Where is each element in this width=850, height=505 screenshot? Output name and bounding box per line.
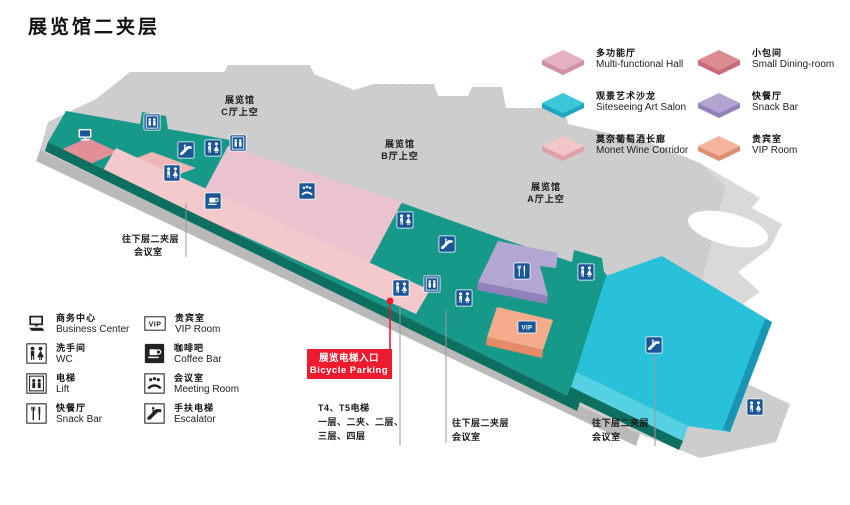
svg-text:展览馆: 展览馆 bbox=[385, 138, 415, 149]
legend-item-vip: 贵宾室 VIP Room bbox=[144, 313, 220, 336]
legend-item-small-dining: 小包间 Small Dining-room bbox=[696, 48, 834, 78]
lift-icon bbox=[230, 135, 246, 151]
vip-box-icon bbox=[144, 316, 166, 331]
svg-text:T4、T5电梯: T4、T5电梯 bbox=[318, 402, 370, 413]
svg-text:往下层二夹层: 往下层二夹层 bbox=[592, 417, 649, 428]
fork-knife-icon bbox=[26, 403, 47, 424]
wc-icon bbox=[205, 140, 221, 156]
legend-label-en: Small Dining-room bbox=[752, 59, 834, 71]
legend-item-monet-corridor: 莫奈葡萄酒长廊 Monet Wine Corridor bbox=[540, 134, 688, 164]
legend-label-en: Multi-functional Hall bbox=[596, 59, 683, 71]
escalator-icon bbox=[646, 337, 662, 353]
svg-text:三层、四层: 三层、四层 bbox=[318, 431, 366, 441]
meeting-icon bbox=[299, 183, 315, 199]
legend-item-art-salon: 观景艺术沙龙 Siteseeing Art Salon bbox=[540, 91, 686, 121]
legend-item-business-center: 商务中心 Business Center bbox=[26, 313, 129, 336]
legend-item-snack-bar: 快餐厅 Snack Bar bbox=[696, 91, 798, 121]
legend-label-en: Monet Wine Corridor bbox=[596, 145, 688, 157]
wc-icon bbox=[393, 280, 409, 296]
svg-text:A厅上空: A厅上空 bbox=[527, 193, 565, 204]
wc-icon bbox=[747, 399, 763, 415]
legend-item-snack: 快餐厅 Snack Bar bbox=[26, 403, 102, 426]
escalator-icon bbox=[144, 403, 165, 424]
bicycle-callout-en: Bicycle Parking bbox=[310, 365, 388, 376]
floor-map-page: VIP bbox=[0, 0, 850, 505]
escalator-icon bbox=[439, 236, 455, 252]
meeting-room-icon bbox=[144, 373, 165, 394]
escalator-icon bbox=[178, 142, 194, 158]
coffee-icon bbox=[205, 193, 221, 209]
svg-text:展览馆: 展览馆 bbox=[531, 181, 561, 192]
legend-label-en: VIP Room bbox=[752, 145, 797, 157]
coffee-cup-icon bbox=[144, 343, 165, 364]
vip-icon bbox=[518, 321, 536, 333]
legend-label-en: Snack Bar bbox=[752, 102, 798, 114]
svg-text:会议室: 会议室 bbox=[134, 246, 163, 257]
svg-text:展览馆: 展览馆 bbox=[225, 94, 255, 105]
svg-text:会议室: 会议室 bbox=[592, 431, 621, 442]
multifunctional-hall-swatch bbox=[540, 48, 586, 78]
svg-text:一层、二夹、二层、: 一层、二夹、二层、 bbox=[318, 416, 404, 427]
legend-label-cn: 多功能厅 bbox=[596, 48, 683, 59]
wc-icon bbox=[26, 343, 47, 364]
monet-corridor-swatch bbox=[540, 134, 586, 164]
snack-bar-swatch bbox=[696, 91, 742, 121]
legend-item-coffee: 咖啡吧 Coffee Bar bbox=[144, 343, 222, 366]
legend-item-meeting: 会议室 Meeting Room bbox=[144, 373, 239, 396]
business-center-icon bbox=[26, 313, 47, 334]
wc-icon bbox=[397, 212, 413, 228]
legend-label-en: Siteseeing Art Salon bbox=[596, 102, 686, 114]
svg-text:会议室: 会议室 bbox=[452, 431, 481, 442]
small-dining-swatch bbox=[696, 48, 742, 78]
fork-icon bbox=[514, 263, 530, 279]
legend-label-cn: 莫奈葡萄酒长廊 bbox=[596, 134, 688, 145]
legend-label-cn: 贵宾室 bbox=[752, 134, 797, 145]
svg-text:B厅上空: B厅上空 bbox=[381, 150, 419, 161]
lift-icon bbox=[144, 114, 160, 130]
bicycle-callout-cn: 展览电梯入口 bbox=[319, 352, 379, 364]
legend-item-wc: 洗手间 WC bbox=[26, 343, 86, 366]
legend-item-escalator: 手扶电梯 Escalator bbox=[144, 403, 216, 426]
legend-label-cn: 观景艺术沙龙 bbox=[596, 91, 686, 102]
wc-icon bbox=[578, 264, 594, 280]
svg-text:往下层二夹层: 往下层二夹层 bbox=[122, 233, 179, 244]
wc-icon bbox=[456, 290, 472, 306]
legend-item-vip-room: 贵宾室 VIP Room bbox=[696, 134, 797, 164]
art-salon-swatch bbox=[540, 91, 586, 121]
wc-icon bbox=[164, 165, 180, 181]
lift-icon bbox=[26, 373, 47, 394]
svg-text:C厅上空: C厅上空 bbox=[221, 106, 259, 117]
lift-icon bbox=[424, 276, 440, 292]
vip-room-swatch bbox=[696, 134, 742, 164]
legend-label-cn: 快餐厅 bbox=[752, 91, 798, 102]
page-title: 展览馆二夹层 bbox=[28, 12, 160, 39]
legend-label-cn: 小包间 bbox=[752, 48, 834, 59]
legend-item-multifunctional-hall: 多功能厅 Multi-functional Hall bbox=[540, 48, 683, 78]
legend-item-lift: 电梯 Lift bbox=[26, 373, 76, 396]
svg-text:往下层二夹层: 往下层二夹层 bbox=[452, 417, 509, 428]
